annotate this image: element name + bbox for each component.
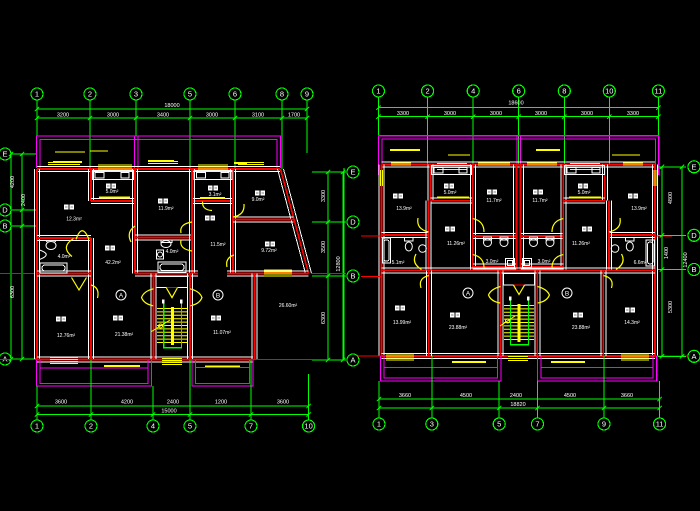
svg-text:26.60m²: 26.60m² [279, 303, 298, 309]
svg-text:12.3m²: 12.3m² [66, 217, 82, 223]
svg-text:3300: 3300 [627, 111, 639, 117]
svg-text:12800: 12800 [336, 256, 342, 271]
svg-text:11.9m²: 11.9m² [158, 206, 174, 212]
svg-text:1700: 1700 [288, 113, 300, 119]
svg-text:11: 11 [656, 420, 664, 429]
svg-text:E: E [2, 150, 7, 159]
svg-text:13.99m²: 13.99m² [393, 320, 412, 326]
svg-text:B: B [216, 293, 220, 300]
svg-text:6: 6 [517, 87, 521, 96]
svg-text:5.0m²: 5.0m² [106, 189, 119, 195]
svg-text:14.3m²: 14.3m² [624, 320, 640, 326]
svg-text:3660: 3660 [621, 393, 633, 399]
svg-text:D: D [691, 231, 697, 240]
svg-text:4200: 4200 [10, 176, 16, 188]
svg-text:A: A [119, 293, 124, 300]
svg-text:11: 11 [655, 87, 663, 96]
svg-text:A: A [350, 356, 355, 365]
svg-text:3000: 3000 [490, 111, 502, 117]
svg-text:4800: 4800 [668, 192, 674, 204]
svg-text:18820: 18820 [510, 402, 525, 408]
svg-text:10: 10 [304, 422, 312, 431]
svg-text:23.88m²: 23.88m² [572, 325, 591, 331]
svg-text:B: B [350, 272, 355, 281]
svg-text:B: B [2, 222, 7, 231]
svg-text:9.72m²: 9.72m² [261, 248, 277, 254]
svg-text:3200: 3200 [57, 113, 69, 119]
svg-text:4500: 4500 [460, 393, 472, 399]
svg-text:4.0m²: 4.0m² [58, 254, 71, 260]
svg-text:5300: 5300 [668, 301, 674, 313]
svg-text:3100: 3100 [252, 113, 264, 119]
svg-text:1: 1 [35, 90, 39, 99]
svg-text:7: 7 [249, 422, 253, 431]
svg-text:12.76m²: 12.76m² [57, 333, 76, 339]
svg-text:4500: 4500 [564, 393, 576, 399]
svg-text:4.0m²: 4.0m² [166, 249, 179, 255]
svg-text:E: E [350, 168, 355, 177]
svg-text:6: 6 [233, 90, 237, 99]
svg-text:5: 5 [497, 420, 501, 429]
svg-text:9: 9 [602, 420, 606, 429]
svg-text:3: 3 [430, 420, 434, 429]
svg-text:5: 5 [188, 90, 192, 99]
svg-text:3.0m²: 3.0m² [538, 259, 551, 265]
svg-text:5.1m²: 5.1m² [392, 260, 405, 266]
svg-text:6.6m²: 6.6m² [634, 260, 647, 266]
svg-text:1: 1 [35, 422, 39, 431]
svg-text:11.7m²: 11.7m² [486, 198, 502, 204]
svg-text:3000: 3000 [444, 111, 456, 117]
svg-text:2: 2 [89, 422, 93, 431]
svg-text:B: B [691, 265, 696, 274]
svg-text:8: 8 [280, 90, 284, 99]
svg-text:5: 5 [188, 422, 192, 431]
svg-text:9: 9 [305, 90, 309, 99]
svg-text:5.0m²: 5.0m² [578, 190, 591, 196]
svg-text:4200: 4200 [121, 400, 133, 406]
svg-text:1200: 1200 [215, 400, 227, 406]
svg-text:3300: 3300 [321, 190, 327, 202]
svg-text:23.88m²: 23.88m² [449, 325, 468, 331]
svg-text:1: 1 [377, 420, 381, 429]
svg-text:21.38m²: 21.38m² [115, 332, 134, 338]
svg-text:9.0m²: 9.0m² [252, 197, 265, 203]
svg-text:3500: 3500 [321, 241, 327, 253]
svg-text:2: 2 [426, 87, 430, 96]
svg-text:15000: 15000 [161, 409, 176, 415]
svg-text:A: A [466, 291, 471, 298]
svg-text:3000: 3000 [535, 111, 547, 117]
svg-text:10: 10 [605, 87, 613, 96]
svg-text:B: B [565, 291, 569, 298]
svg-text:18000: 18000 [164, 103, 179, 109]
svg-text:13.9m²: 13.9m² [396, 206, 412, 212]
svg-text:E: E [691, 163, 696, 172]
svg-text:3600: 3600 [55, 400, 67, 406]
svg-text:3300: 3300 [397, 111, 409, 117]
svg-text:3.1m²: 3.1m² [209, 192, 222, 198]
svg-text:3000: 3000 [107, 113, 119, 119]
svg-text:3: 3 [134, 90, 138, 99]
svg-text:13.9m²: 13.9m² [631, 206, 647, 212]
svg-text:2400: 2400 [510, 393, 522, 399]
svg-text:4: 4 [471, 87, 475, 96]
svg-text:11.07m²: 11.07m² [213, 330, 231, 336]
svg-text:11.5m²: 11.5m² [210, 242, 226, 248]
svg-text:6300: 6300 [10, 286, 16, 298]
svg-text:42.2m²: 42.2m² [105, 260, 121, 266]
svg-text:11.7m²: 11.7m² [532, 198, 548, 204]
svg-text:D: D [350, 218, 356, 227]
svg-text:7: 7 [535, 420, 539, 429]
svg-text:6300: 6300 [321, 312, 327, 324]
svg-text:5.0m²: 5.0m² [444, 190, 457, 196]
svg-text:2400: 2400 [167, 400, 179, 406]
svg-text:3400: 3400 [157, 113, 169, 119]
svg-text:3.0m²: 3.0m² [486, 259, 499, 265]
svg-text:1400: 1400 [664, 247, 670, 259]
svg-text:12400: 12400 [683, 252, 689, 267]
svg-text:18600: 18600 [508, 101, 523, 107]
svg-text:D: D [2, 206, 8, 215]
svg-text:4: 4 [151, 422, 155, 431]
svg-text:2400: 2400 [21, 194, 27, 206]
svg-text:2: 2 [88, 90, 92, 99]
svg-text:1: 1 [376, 87, 380, 96]
svg-text:11.26m²: 11.26m² [572, 241, 590, 247]
svg-text:3600: 3600 [277, 400, 289, 406]
svg-text:3000: 3000 [581, 111, 593, 117]
svg-text:3660: 3660 [399, 393, 411, 399]
svg-text:3000: 3000 [206, 113, 218, 119]
svg-text:8: 8 [562, 87, 566, 96]
svg-text:11.26m²: 11.26m² [447, 241, 465, 247]
svg-text:A: A [691, 352, 696, 361]
